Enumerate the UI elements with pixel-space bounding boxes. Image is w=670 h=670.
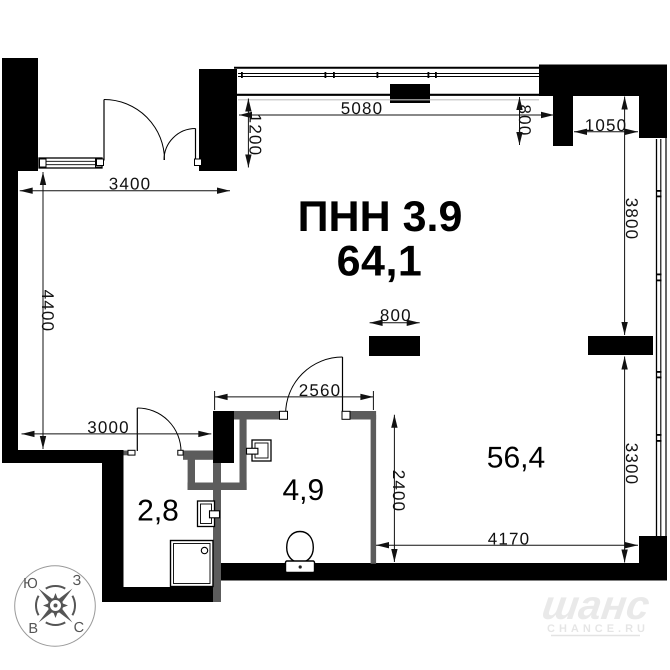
svg-text:1050: 1050: [585, 116, 628, 135]
svg-text:4,9: 4,9: [282, 474, 324, 507]
svg-text:2560: 2560: [299, 381, 342, 400]
svg-text:3000: 3000: [87, 418, 130, 437]
svg-text:Ю: Ю: [23, 576, 38, 592]
svg-text:4170: 4170: [488, 529, 531, 548]
svg-text:64,1: 64,1: [337, 238, 423, 286]
svg-text:В: В: [28, 621, 38, 637]
svg-text:CHANCE.RU: CHANCE.RU: [547, 623, 649, 635]
svg-text:шанс: шанс: [539, 582, 652, 628]
svg-text:3400: 3400: [109, 174, 152, 193]
svg-text:З: З: [73, 573, 82, 589]
svg-text:1200: 1200: [246, 114, 265, 157]
svg-text:3300: 3300: [622, 443, 641, 486]
svg-text:5080: 5080: [341, 99, 384, 118]
svg-text:56,4: 56,4: [487, 442, 545, 475]
svg-text:2400: 2400: [389, 470, 408, 513]
svg-text:3800: 3800: [622, 198, 641, 241]
svg-text:2,8: 2,8: [137, 495, 179, 528]
svg-text:800: 800: [515, 105, 534, 137]
svg-text:4400: 4400: [38, 290, 57, 333]
svg-text:ПНН 3.9: ПНН 3.9: [298, 193, 463, 241]
svg-text:С: С: [74, 620, 84, 636]
svg-text:800: 800: [380, 306, 412, 325]
